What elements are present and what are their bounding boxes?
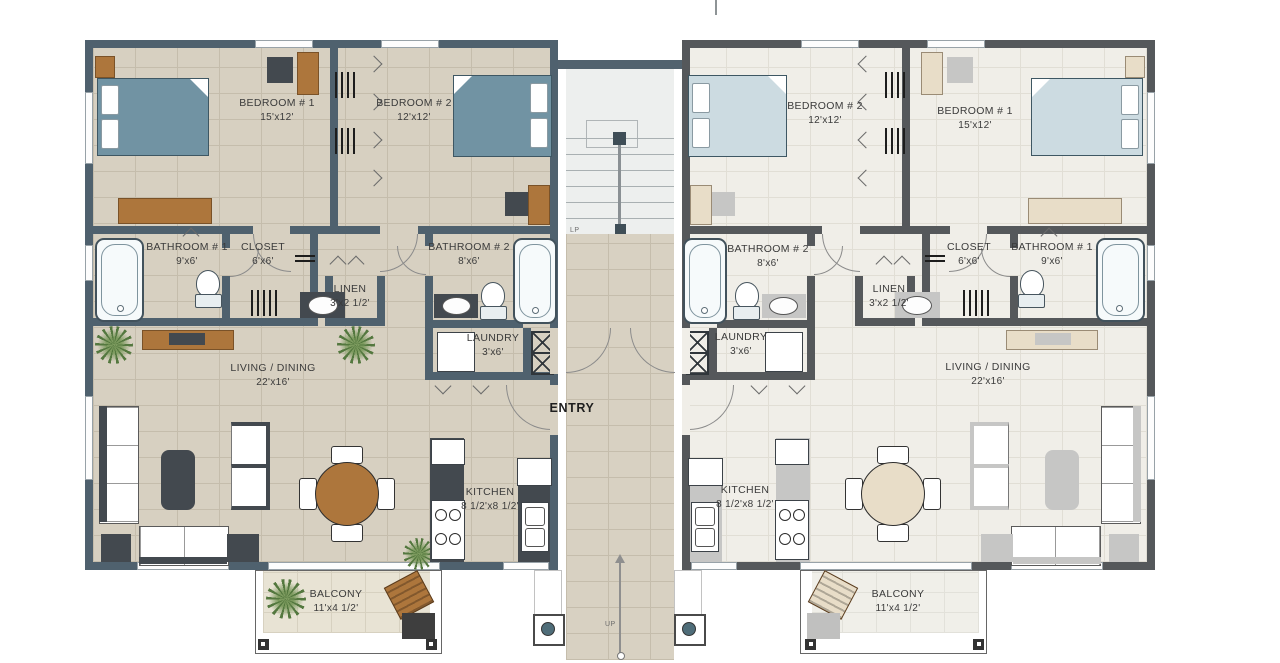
- pillow: [101, 119, 119, 149]
- console-tv: [169, 333, 205, 345]
- wall-segment: [418, 226, 550, 234]
- wall-segment: [425, 234, 433, 246]
- blanket-fold: [1032, 79, 1050, 97]
- floor-plan: BEDROOM # 1 15'x12' BEDROOM # 2 12'x12' …: [0, 0, 1280, 663]
- window: [801, 40, 859, 48]
- blanket-fold: [454, 76, 472, 94]
- wall-segment: [325, 318, 385, 326]
- wall-segment: [523, 328, 531, 372]
- wall-segment: [682, 40, 1155, 48]
- sink-basin: [695, 528, 715, 547]
- sink-basin: [902, 296, 932, 315]
- tub-drain: [117, 305, 124, 312]
- porch-column: [674, 614, 706, 646]
- refrigerator: [688, 458, 723, 486]
- stove-burner: [779, 509, 791, 521]
- up-arrow-origin: [617, 652, 625, 660]
- washer: [437, 332, 475, 372]
- console-tv: [1035, 333, 1071, 345]
- toilet-tank: [733, 306, 760, 320]
- desk: [528, 185, 550, 225]
- window: [1147, 396, 1155, 480]
- armchair: [970, 422, 1009, 468]
- column-cap: [682, 622, 696, 636]
- toilet-bowl: [735, 282, 759, 309]
- vanity-sink: [300, 292, 345, 318]
- window: [381, 40, 439, 48]
- column-cap: [541, 622, 555, 636]
- wall-segment: [860, 226, 950, 234]
- wall-segment: [855, 318, 915, 326]
- unit-left: [85, 40, 558, 570]
- dresser: [1028, 198, 1122, 224]
- wall-segment: [807, 234, 815, 246]
- wall-segment: [222, 234, 230, 248]
- door-opening: [550, 328, 558, 374]
- bathtub: [683, 238, 727, 324]
- toilet: [734, 282, 760, 320]
- patio-table: [807, 613, 840, 639]
- desk-chair: [711, 192, 735, 216]
- wall-segment: [222, 276, 230, 318]
- coffee-table: [1045, 450, 1079, 510]
- washer: [765, 332, 803, 372]
- wall-segment: [807, 328, 815, 372]
- balcony-left: [255, 570, 442, 654]
- sink-basin: [769, 297, 798, 315]
- bed: [688, 75, 787, 157]
- closet-shelf-hatch: [925, 252, 945, 262]
- tub-drain: [701, 307, 708, 314]
- wall-segment: [717, 320, 815, 328]
- pillow: [101, 85, 119, 115]
- stove-burner: [793, 509, 805, 521]
- kitchen-cabinet: [431, 439, 465, 465]
- bathtub: [513, 238, 557, 324]
- wall-segment: [1010, 276, 1018, 318]
- entry-hall: [558, 56, 682, 660]
- porch-rail: [674, 570, 702, 618]
- railing-post: [805, 639, 816, 650]
- sink-basin: [525, 528, 545, 547]
- patio-table: [402, 613, 435, 639]
- dining-chair: [377, 478, 395, 510]
- pillow: [530, 83, 548, 113]
- plant: [266, 579, 306, 619]
- porch-rail: [534, 570, 562, 618]
- door-opening: [682, 328, 690, 374]
- wall-segment: [690, 226, 822, 234]
- toilet-bowl: [481, 282, 505, 309]
- kitchen-cabinet: [775, 439, 809, 465]
- pillow: [692, 83, 710, 113]
- toilet-bowl: [196, 270, 220, 297]
- unit-right: [682, 40, 1155, 570]
- door-opening: [682, 385, 690, 435]
- stair-newel: [613, 132, 626, 145]
- dining-chair: [877, 524, 909, 542]
- side-table: [1109, 534, 1139, 562]
- closet-rod-hatch: [883, 128, 905, 154]
- closet-rod-hatch: [335, 72, 357, 98]
- armchair: [970, 464, 1009, 510]
- sofa-back: [99, 406, 107, 522]
- side-table: [227, 534, 259, 562]
- leader-tick: [715, 0, 717, 15]
- desk-chair: [505, 192, 529, 216]
- closet-rod-hatch: [961, 290, 989, 316]
- plant: [337, 326, 375, 364]
- stove-burner: [435, 533, 447, 545]
- wall-segment: [425, 328, 433, 372]
- closet-shelf-hatch: [295, 252, 315, 262]
- window: [1147, 245, 1155, 281]
- toilet: [480, 282, 506, 320]
- nightstand: [1125, 56, 1145, 78]
- bed: [453, 75, 552, 157]
- bed: [97, 78, 209, 156]
- wall-segment: [855, 276, 863, 318]
- armchair: [231, 464, 270, 510]
- wall-segment: [1010, 234, 1018, 248]
- window: [1147, 92, 1155, 164]
- plant: [95, 326, 133, 364]
- tub-drain: [532, 307, 539, 314]
- stove-burner: [449, 509, 461, 521]
- desk: [297, 52, 319, 95]
- vanity-sink: [434, 294, 478, 318]
- wall-segment: [709, 328, 717, 372]
- wall-segment: [425, 320, 523, 328]
- bathtub: [95, 238, 144, 322]
- up-arrow-head: [615, 554, 625, 563]
- window: [85, 245, 93, 281]
- nightstand: [95, 56, 115, 78]
- pillow: [530, 118, 548, 148]
- dining-table: [315, 462, 379, 526]
- vanity-sink: [895, 292, 940, 318]
- bathtub: [1096, 238, 1145, 322]
- window: [85, 92, 93, 164]
- balcony-sliding-door: [800, 562, 972, 570]
- up-arrow-line: [619, 562, 621, 654]
- toilet-tank: [195, 294, 222, 308]
- window: [927, 40, 985, 48]
- closet-rod-hatch: [251, 290, 279, 316]
- kitchen-sink: [521, 502, 549, 552]
- side-table: [981, 534, 1013, 562]
- dining-table: [861, 462, 925, 526]
- railing-post: [426, 639, 437, 650]
- vanity-sink: [762, 294, 806, 318]
- wall-segment: [93, 226, 253, 234]
- side-table: [101, 534, 131, 562]
- sink-basin: [695, 507, 715, 526]
- balcony-right: [800, 570, 987, 654]
- railing-post: [258, 639, 269, 650]
- coffee-table: [161, 450, 195, 510]
- desk-chair: [947, 57, 973, 83]
- door-opening: [550, 385, 558, 435]
- dresser: [118, 198, 212, 224]
- toilet-tank: [480, 306, 507, 320]
- toilet-bowl: [1020, 270, 1044, 297]
- sofa-back: [1013, 557, 1101, 564]
- desk: [921, 52, 943, 95]
- armchair: [231, 422, 270, 468]
- stove-burner: [793, 533, 805, 545]
- toilet-tank: [1018, 294, 1045, 308]
- stove-burner: [779, 533, 791, 545]
- wall-segment: [290, 226, 380, 234]
- dining-chair: [331, 524, 363, 542]
- wall-segment: [85, 40, 558, 48]
- sink-basin: [442, 297, 471, 315]
- stove: [431, 500, 465, 560]
- bed: [1031, 78, 1143, 156]
- stove-burner: [435, 509, 447, 521]
- blanket-fold: [190, 79, 208, 97]
- sink-basin: [525, 507, 545, 526]
- toilet: [195, 270, 221, 308]
- sink-basin: [308, 296, 338, 315]
- wall-segment: [807, 276, 815, 320]
- window: [503, 562, 549, 570]
- toilet: [1019, 270, 1045, 308]
- refrigerator: [517, 458, 552, 486]
- sofa-back: [139, 557, 227, 564]
- dining-chair: [923, 478, 941, 510]
- window: [255, 40, 313, 48]
- stove-burner: [449, 533, 461, 545]
- closet-rod-hatch: [335, 128, 357, 154]
- window: [691, 562, 737, 570]
- wall-segment: [425, 276, 433, 320]
- stair-rail: [618, 138, 621, 234]
- wall-segment: [987, 226, 1147, 234]
- pillow: [692, 118, 710, 148]
- window: [85, 396, 93, 480]
- pillow: [1121, 119, 1139, 149]
- blanket-fold: [768, 76, 786, 94]
- desk: [690, 185, 712, 225]
- stove: [775, 500, 809, 560]
- porch-column: [533, 614, 565, 646]
- kitchen-sink: [691, 502, 719, 552]
- railing-post: [973, 639, 984, 650]
- sofa-back: [1133, 406, 1141, 522]
- closet-rod-hatch: [883, 72, 905, 98]
- desk-chair: [267, 57, 293, 83]
- wall-segment: [377, 276, 385, 318]
- pillow: [1121, 85, 1139, 115]
- wall-segment: [558, 60, 682, 69]
